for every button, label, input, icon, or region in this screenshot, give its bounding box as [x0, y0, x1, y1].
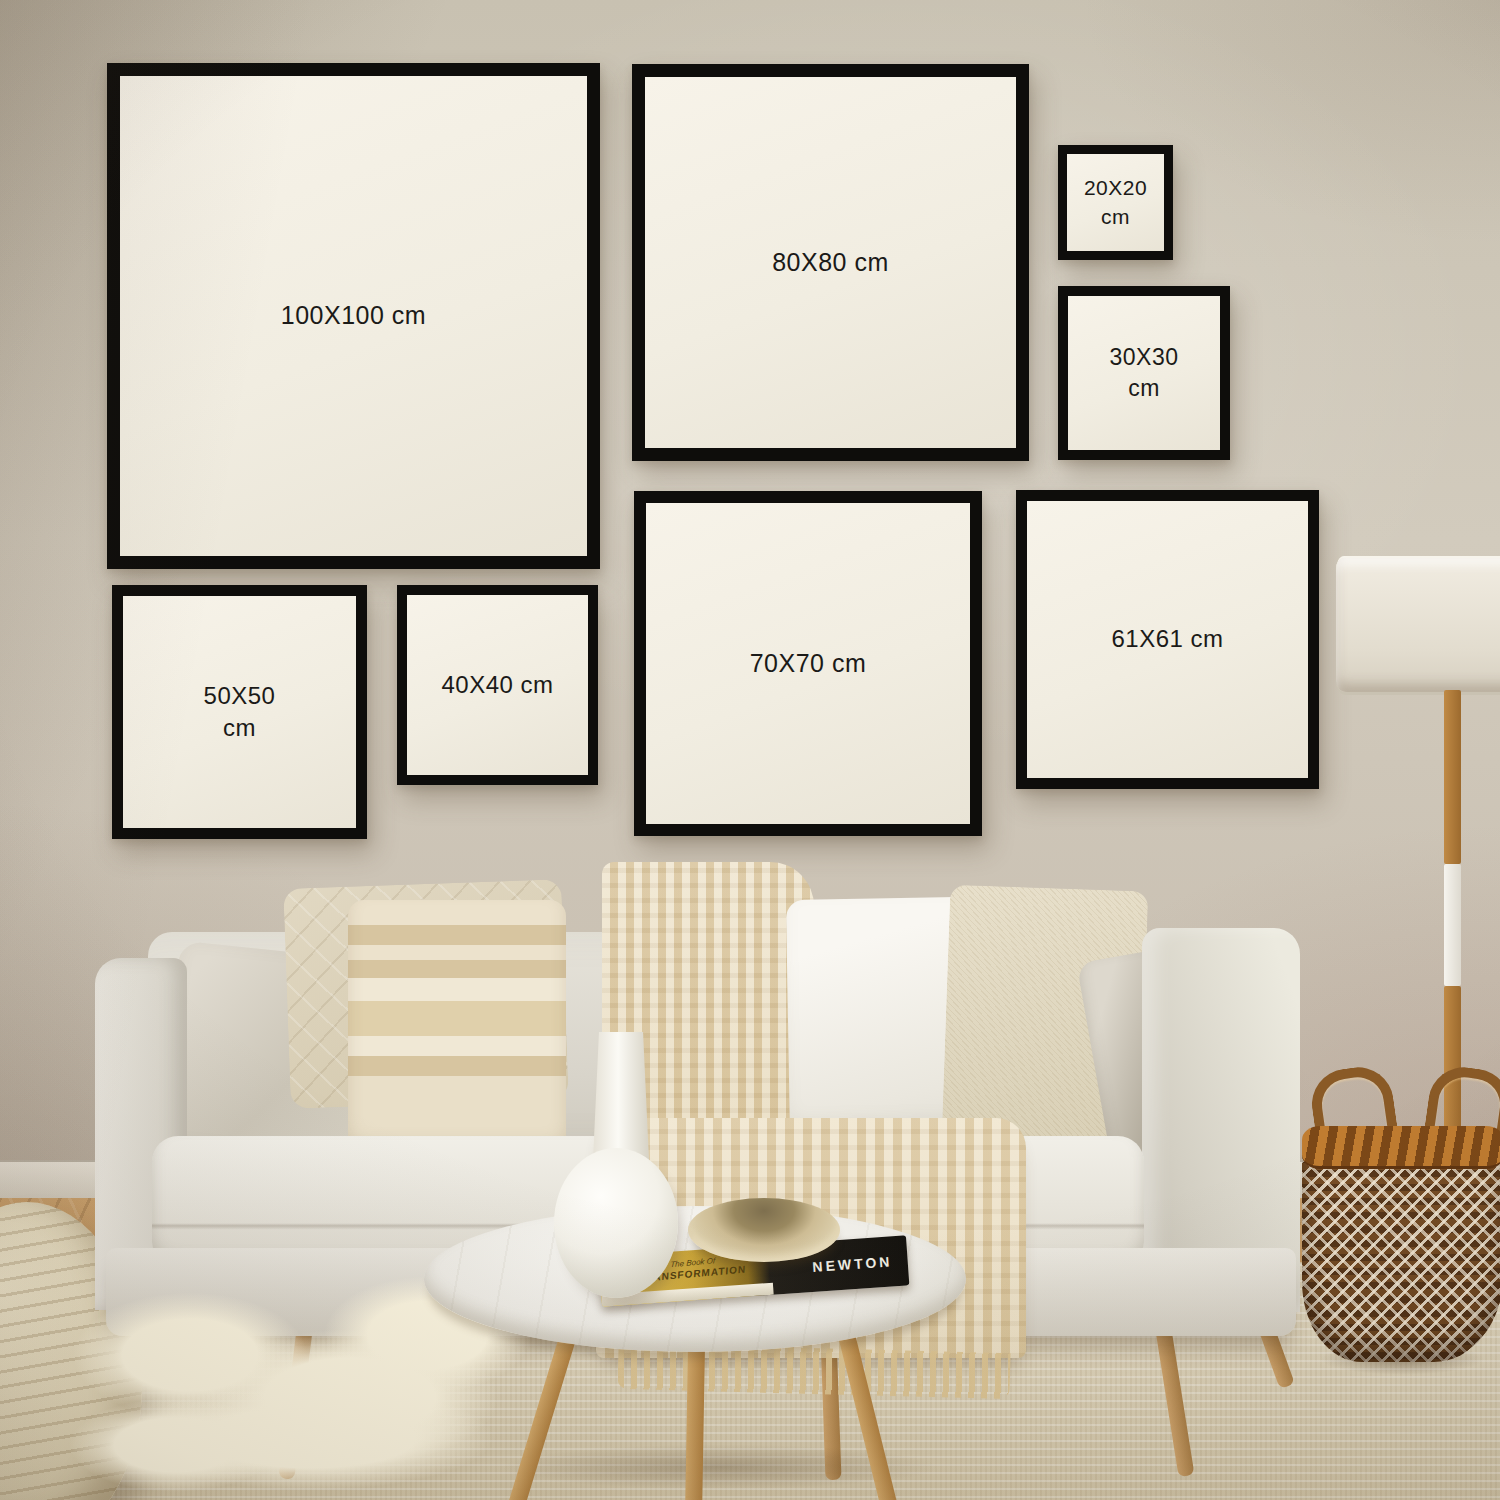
table-leg: [685, 1345, 705, 1500]
frame-size-label: 30X30 cm: [1100, 342, 1188, 404]
basket-rim: [1302, 1126, 1500, 1169]
white-vase-body: [554, 1148, 678, 1298]
frame-30x30: 30X30 cm: [1058, 286, 1230, 460]
frame-mat: 61X61 cm: [1027, 501, 1308, 778]
fur-blob: [40, 1385, 310, 1500]
floor-lamp-shade: [1336, 556, 1500, 695]
frame-size-label: 100X100 cm: [281, 299, 426, 333]
frame-100x100: 100X100 cm: [107, 63, 600, 569]
frame-mat: 40X40 cm: [407, 595, 588, 775]
frame-80x80: 80X80 cm: [632, 64, 1029, 461]
frame-mat: 50X50 cm: [123, 596, 356, 828]
ceramic-bowl: [688, 1198, 840, 1262]
frame-mat: 100X100 cm: [120, 76, 587, 556]
living-room-scene: 100X100 cm 80X80 cm 20X20 cm 30X30 cm 50…: [0, 0, 1500, 1500]
frame-size-label: 50X50 cm: [190, 680, 290, 745]
frame-mat: 80X80 cm: [645, 77, 1016, 448]
frame-mat: 20X20 cm: [1067, 154, 1164, 251]
floor-lamp-pole-white: [1444, 864, 1461, 986]
frame-size-label: 70X70 cm: [750, 647, 867, 681]
frame-20x20: 20X20 cm: [1058, 145, 1173, 260]
book-spine-title: NEWTON: [812, 1253, 893, 1275]
frame-mat: 70X70 cm: [646, 503, 970, 824]
frame-size-label: 20X20 cm: [1082, 174, 1150, 231]
frame-61x61: 61X61 cm: [1016, 490, 1319, 789]
frame-70x70: 70X70 cm: [634, 491, 982, 836]
floor-lamp-pole-wood: [1444, 690, 1461, 864]
frame-size-label: 61X61 cm: [1111, 623, 1223, 655]
cushion-boho-tassel: [348, 900, 566, 1152]
frame-50x50: 50X50 cm: [112, 585, 367, 839]
frame-40x40: 40X40 cm: [397, 585, 598, 785]
frame-size-label: 80X80 cm: [772, 246, 889, 280]
frame-mat: 30X30 cm: [1068, 296, 1220, 450]
frame-size-label: 40X40 cm: [441, 669, 553, 701]
